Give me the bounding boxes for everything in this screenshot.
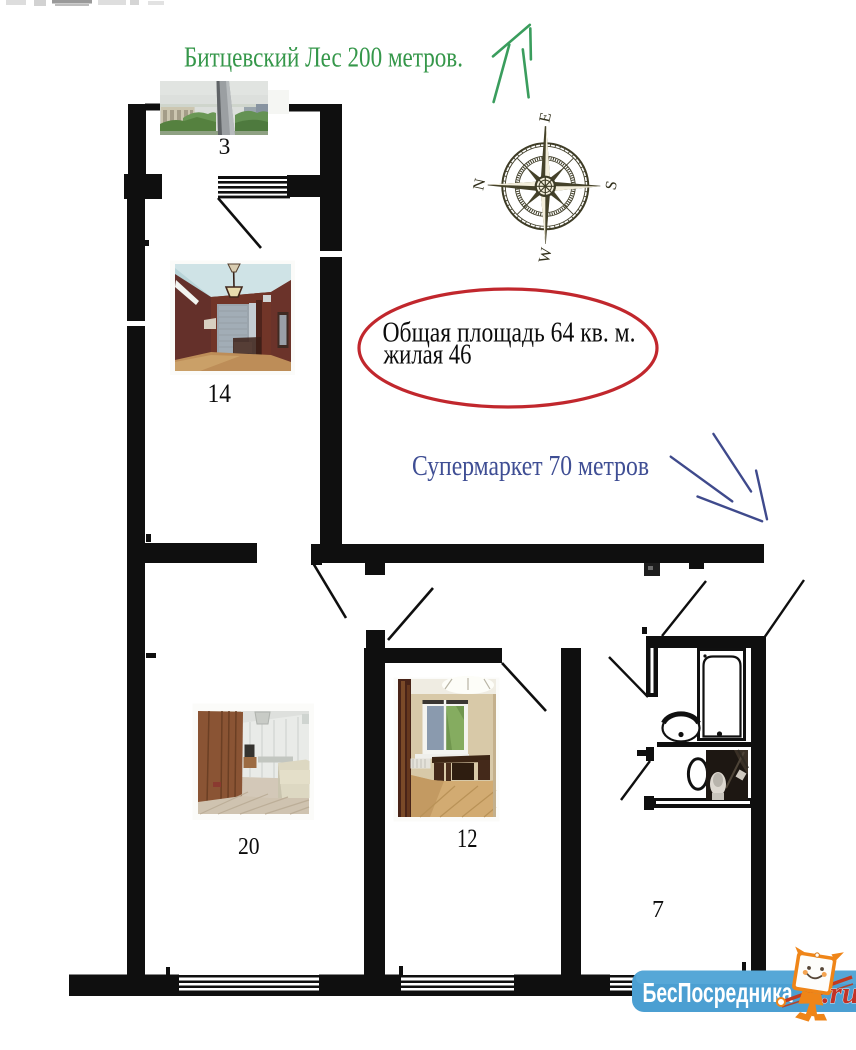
svg-text:.ru: .ru (822, 975, 856, 1010)
svg-text:14: 14 (208, 379, 232, 408)
svg-text:Супермаркет 70 метров: Супермаркет 70 метров (412, 450, 649, 482)
svg-text:жилая 46: жилая 46 (383, 339, 472, 371)
svg-text:7: 7 (652, 897, 664, 923)
svg-text:3: 3 (219, 134, 231, 160)
svg-text:12: 12 (457, 824, 478, 853)
svg-text:Битцевский Лес 200 метров.: Битцевский Лес 200 метров. (184, 43, 463, 74)
svg-text:20: 20 (238, 834, 260, 860)
svg-text:БесПосредника: БесПосредника (643, 977, 793, 1008)
